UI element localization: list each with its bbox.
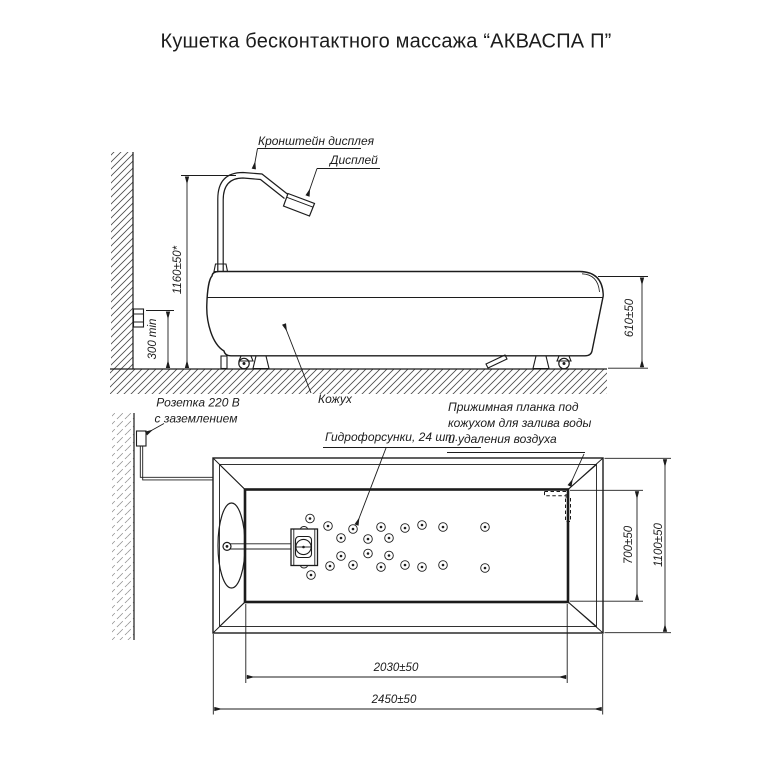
nozzle [307,571,316,580]
nozzle [385,551,394,560]
nozzle [418,563,427,572]
nozzle [377,563,386,572]
nozzle [418,521,427,530]
side-view [110,149,648,395]
top-view-leaders [323,448,585,526]
couch-feet [221,355,571,369]
dim-text-1160: 1160±50* [172,246,184,294]
nozzle [439,523,448,532]
label-clamp-line3: и удаления воздуха [448,432,557,448]
label-display: Дисплей [330,153,378,169]
label-cover: Кожух [318,392,352,408]
nozzle [306,514,315,523]
dim-text-300: 300 min [147,319,159,360]
label-socket-line2: с заземлением [155,411,238,427]
jet-carriage-rod [223,542,296,550]
drawing-linework [0,0,768,768]
brake-pedal [486,355,507,368]
dim-text-2450: 2450±50 [372,694,417,706]
dim-text-1100: 1100±50 [653,523,665,567]
wall-socket-side [134,309,144,327]
frame-bevels [214,459,603,633]
nozzle [337,534,346,543]
nozzle [337,552,346,561]
nozzle [349,561,358,570]
nozzle [401,561,410,570]
wall-section [111,152,133,369]
drawing-title: Кушетка бесконтактного массажа “АКВАСПА … [160,31,611,54]
nozzle [377,523,386,532]
label-clamp-line2: кожухом для залива воды [448,416,591,432]
wall-section-lower [112,413,134,640]
jet-carriage-block [291,527,318,569]
display-head [284,194,315,217]
label-display-bracket: Кронштейн дисплея [258,134,374,150]
display-bracket-arm [214,173,288,272]
dim-610 [598,277,648,369]
label-nozzles: Гидрофорсунки, 24 шт. [325,430,458,446]
label-socket-line1: Розетка 220 В [156,395,239,411]
dim-text-2030: 2030±50 [374,662,419,674]
label-clamp-line1: Прижимная планка под [448,400,578,416]
nozzle [349,525,358,534]
nozzle [364,549,373,558]
nozzle [364,535,373,544]
dim-text-700: 700±50 [623,526,635,564]
technical-drawing-page: Кушетка бесконтактного массажа “АКВАСПА … [0,0,768,768]
nozzle [324,522,333,531]
nozzle [385,534,394,543]
hydro-nozzles [306,514,490,579]
nozzle [401,524,410,533]
floor-section [110,369,607,394]
couch-body [207,272,604,356]
nozzle [326,562,335,571]
wall-socket-top [137,424,214,480]
dim-text-610: 610±50 [624,299,636,337]
nozzle [439,561,448,570]
tub-frame [213,458,603,633]
clamping-strip [545,492,571,522]
nozzle [481,523,490,532]
nozzle [481,564,490,573]
